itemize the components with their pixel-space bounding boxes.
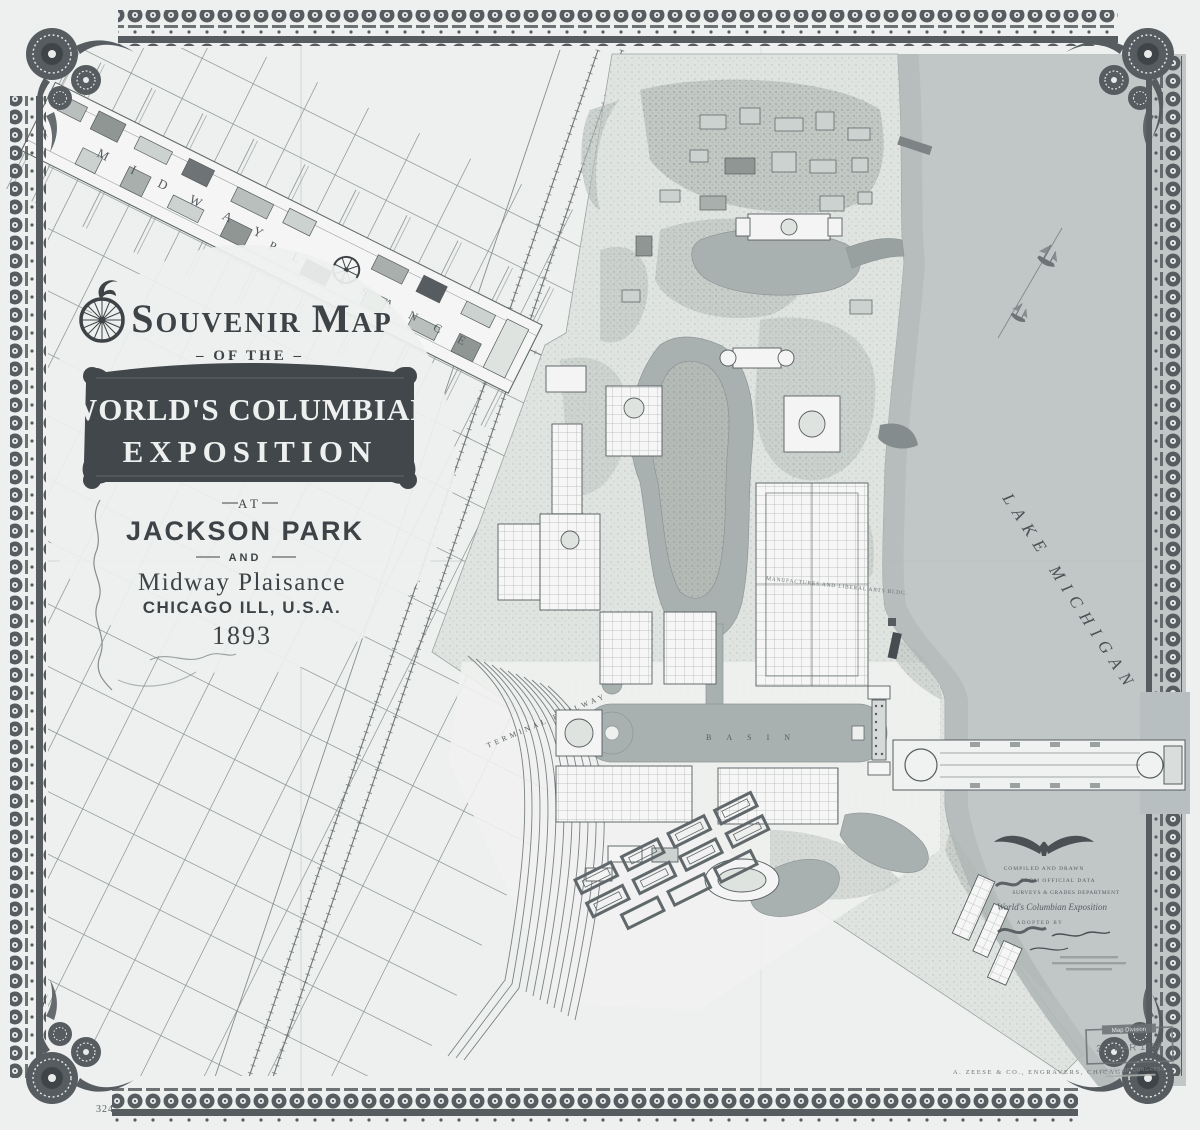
banner-line2: EXPOSITION	[123, 434, 378, 469]
title-banner: WORLD'S COLUMBIAN EXPOSITION	[66, 363, 434, 489]
title-of-the: – OF THE –	[195, 348, 304, 364]
title-and: AND	[229, 552, 262, 564]
title-chicago: CHICAGO ILL, U.S.A.	[143, 598, 342, 617]
casino-pier	[893, 740, 1185, 790]
title-jackson-park: JACKSON PARK	[126, 516, 364, 546]
title-at: AT	[238, 496, 262, 511]
title-main: SouvenirMap	[131, 296, 393, 341]
basin-label: BASIN	[706, 733, 805, 742]
stamp-date: 3 – MAR 1956	[1096, 1041, 1163, 1054]
plate-number: 324	[96, 1104, 114, 1115]
cert-line1: COMPILED AND DRAWN	[1004, 866, 1085, 872]
map-canvas: TERMINAL RAILWAY	[0, 0, 1200, 1130]
banner-line1: WORLD'S COLUMBIAN	[66, 392, 434, 427]
title-midway-plaisance: Midway Plaisance	[138, 569, 346, 596]
title-year: 1893	[212, 621, 272, 650]
engraver-imprint: A. ZEESE & CO., ENGRAVERS, CHICAGO.	[953, 1069, 1131, 1076]
cert-line4: ADOPTED BY	[1017, 921, 1064, 926]
stamp-division: Map Division	[1112, 1027, 1147, 1034]
cert-script: World's Columbian Exposition	[997, 902, 1108, 912]
souvenir-map-page: TERMINAL RAILWAY	[0, 0, 1200, 1130]
cert-line3: SURVEYS & GRADES DEPARTMENT	[1012, 890, 1119, 896]
